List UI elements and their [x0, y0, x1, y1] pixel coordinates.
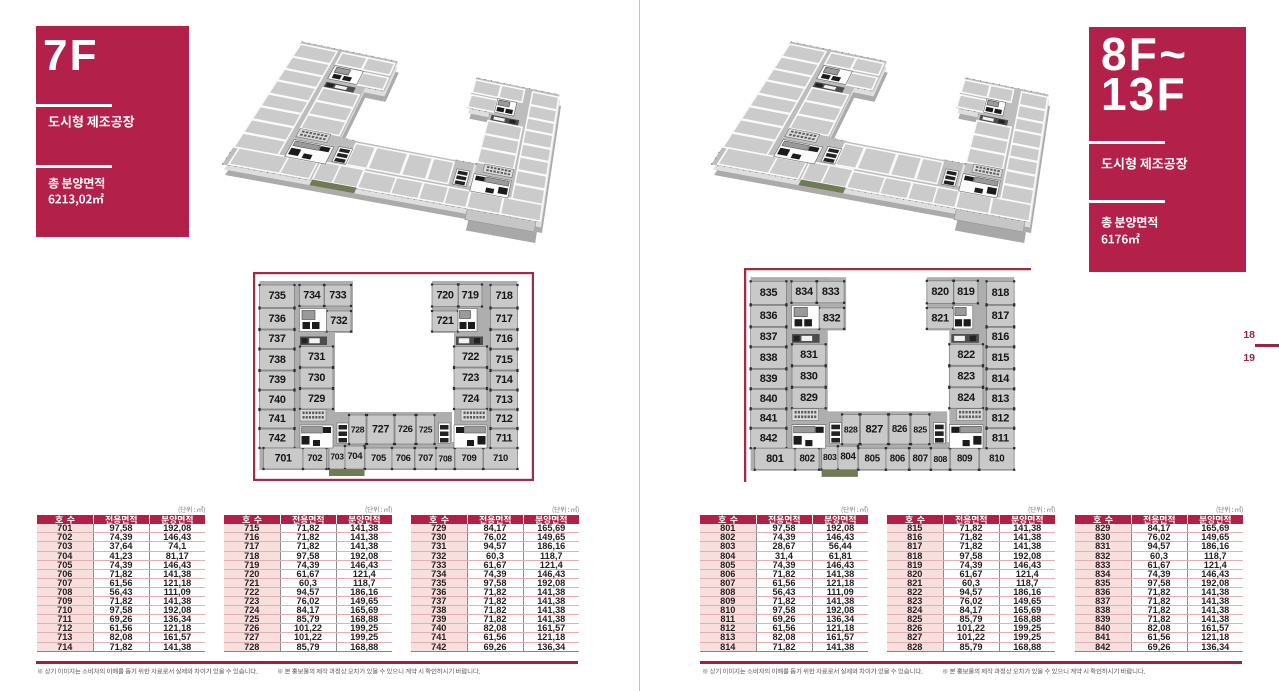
svg-text:812: 812	[992, 413, 1010, 425]
svg-text:722: 722	[462, 351, 479, 363]
svg-text:725: 725	[419, 425, 433, 435]
svg-text:819: 819	[957, 286, 975, 298]
svg-text:720: 720	[436, 290, 453, 302]
svg-text:716: 716	[495, 333, 512, 345]
svg-text:823: 823	[957, 371, 975, 383]
svg-text:742: 742	[268, 433, 285, 445]
svg-text:706: 706	[396, 453, 411, 464]
svg-text:701: 701	[275, 453, 292, 465]
svg-text:740: 740	[268, 394, 285, 406]
svg-text:826: 826	[892, 424, 908, 435]
svg-text:728: 728	[351, 425, 365, 435]
svg-text:810: 810	[989, 453, 1004, 464]
svg-text:825: 825	[913, 424, 927, 434]
svg-text:732: 732	[330, 315, 347, 327]
svg-text:711: 711	[496, 433, 513, 445]
svg-text:739: 739	[268, 374, 285, 386]
svg-text:713: 713	[495, 394, 512, 406]
svg-text:741: 741	[268, 413, 285, 425]
svg-text:733: 733	[329, 290, 346, 302]
svg-text:804: 804	[840, 451, 856, 462]
svg-text:737: 737	[268, 333, 285, 345]
svg-text:735: 735	[268, 290, 285, 302]
svg-text:832: 832	[823, 312, 841, 324]
svg-text:809: 809	[957, 453, 973, 464]
svg-text:703: 703	[330, 452, 344, 462]
svg-text:835: 835	[760, 287, 778, 299]
svg-text:829: 829	[800, 392, 818, 404]
svg-text:808: 808	[934, 454, 948, 464]
svg-text:842: 842	[760, 432, 778, 444]
svg-text:723: 723	[462, 372, 479, 384]
svg-text:814: 814	[992, 373, 1011, 385]
svg-text:726: 726	[398, 424, 413, 435]
svg-text:736: 736	[268, 313, 285, 325]
svg-text:817: 817	[992, 310, 1010, 322]
svg-text:704: 704	[347, 451, 363, 462]
svg-text:824: 824	[957, 392, 976, 404]
svg-text:707: 707	[418, 453, 433, 464]
svg-text:837: 837	[760, 331, 778, 343]
svg-text:715: 715	[495, 354, 512, 366]
svg-text:836: 836	[760, 310, 778, 322]
svg-text:718: 718	[495, 290, 512, 302]
svg-text:714: 714	[495, 374, 512, 386]
svg-text:815: 815	[992, 352, 1010, 364]
svg-text:822: 822	[957, 349, 975, 361]
svg-text:841: 841	[760, 413, 778, 425]
svg-text:709: 709	[462, 453, 477, 464]
svg-text:821: 821	[931, 312, 949, 324]
svg-text:833: 833	[822, 286, 840, 298]
svg-text:807: 807	[913, 453, 928, 464]
svg-text:721: 721	[436, 315, 453, 327]
svg-text:805: 805	[865, 453, 881, 464]
svg-text:705: 705	[371, 453, 387, 464]
svg-text:830: 830	[800, 371, 818, 383]
svg-text:731: 731	[308, 351, 325, 363]
svg-text:827: 827	[865, 423, 883, 435]
svg-text:724: 724	[462, 393, 479, 405]
svg-text:729: 729	[308, 393, 325, 405]
svg-text:738: 738	[268, 354, 285, 366]
svg-text:803: 803	[823, 452, 837, 462]
svg-text:708: 708	[439, 454, 453, 464]
svg-text:840: 840	[760, 393, 778, 405]
svg-text:834: 834	[795, 286, 814, 298]
svg-text:801: 801	[766, 453, 784, 465]
svg-text:727: 727	[372, 424, 389, 436]
svg-text:734: 734	[303, 290, 320, 302]
svg-text:730: 730	[308, 372, 325, 384]
svg-text:806: 806	[890, 453, 906, 464]
svg-text:717: 717	[495, 313, 512, 325]
svg-text:813: 813	[992, 393, 1010, 405]
svg-text:702: 702	[307, 453, 322, 464]
svg-text:818: 818	[992, 287, 1010, 299]
svg-text:802: 802	[799, 453, 815, 464]
svg-text:719: 719	[462, 290, 479, 302]
svg-text:828: 828	[844, 424, 858, 434]
svg-text:839: 839	[760, 373, 778, 385]
svg-text:838: 838	[760, 352, 778, 364]
svg-text:831: 831	[800, 349, 818, 361]
svg-text:820: 820	[931, 286, 949, 298]
svg-text:816: 816	[992, 331, 1010, 343]
svg-text:712: 712	[495, 413, 512, 425]
svg-text:811: 811	[992, 432, 1009, 444]
svg-text:710: 710	[493, 453, 508, 464]
